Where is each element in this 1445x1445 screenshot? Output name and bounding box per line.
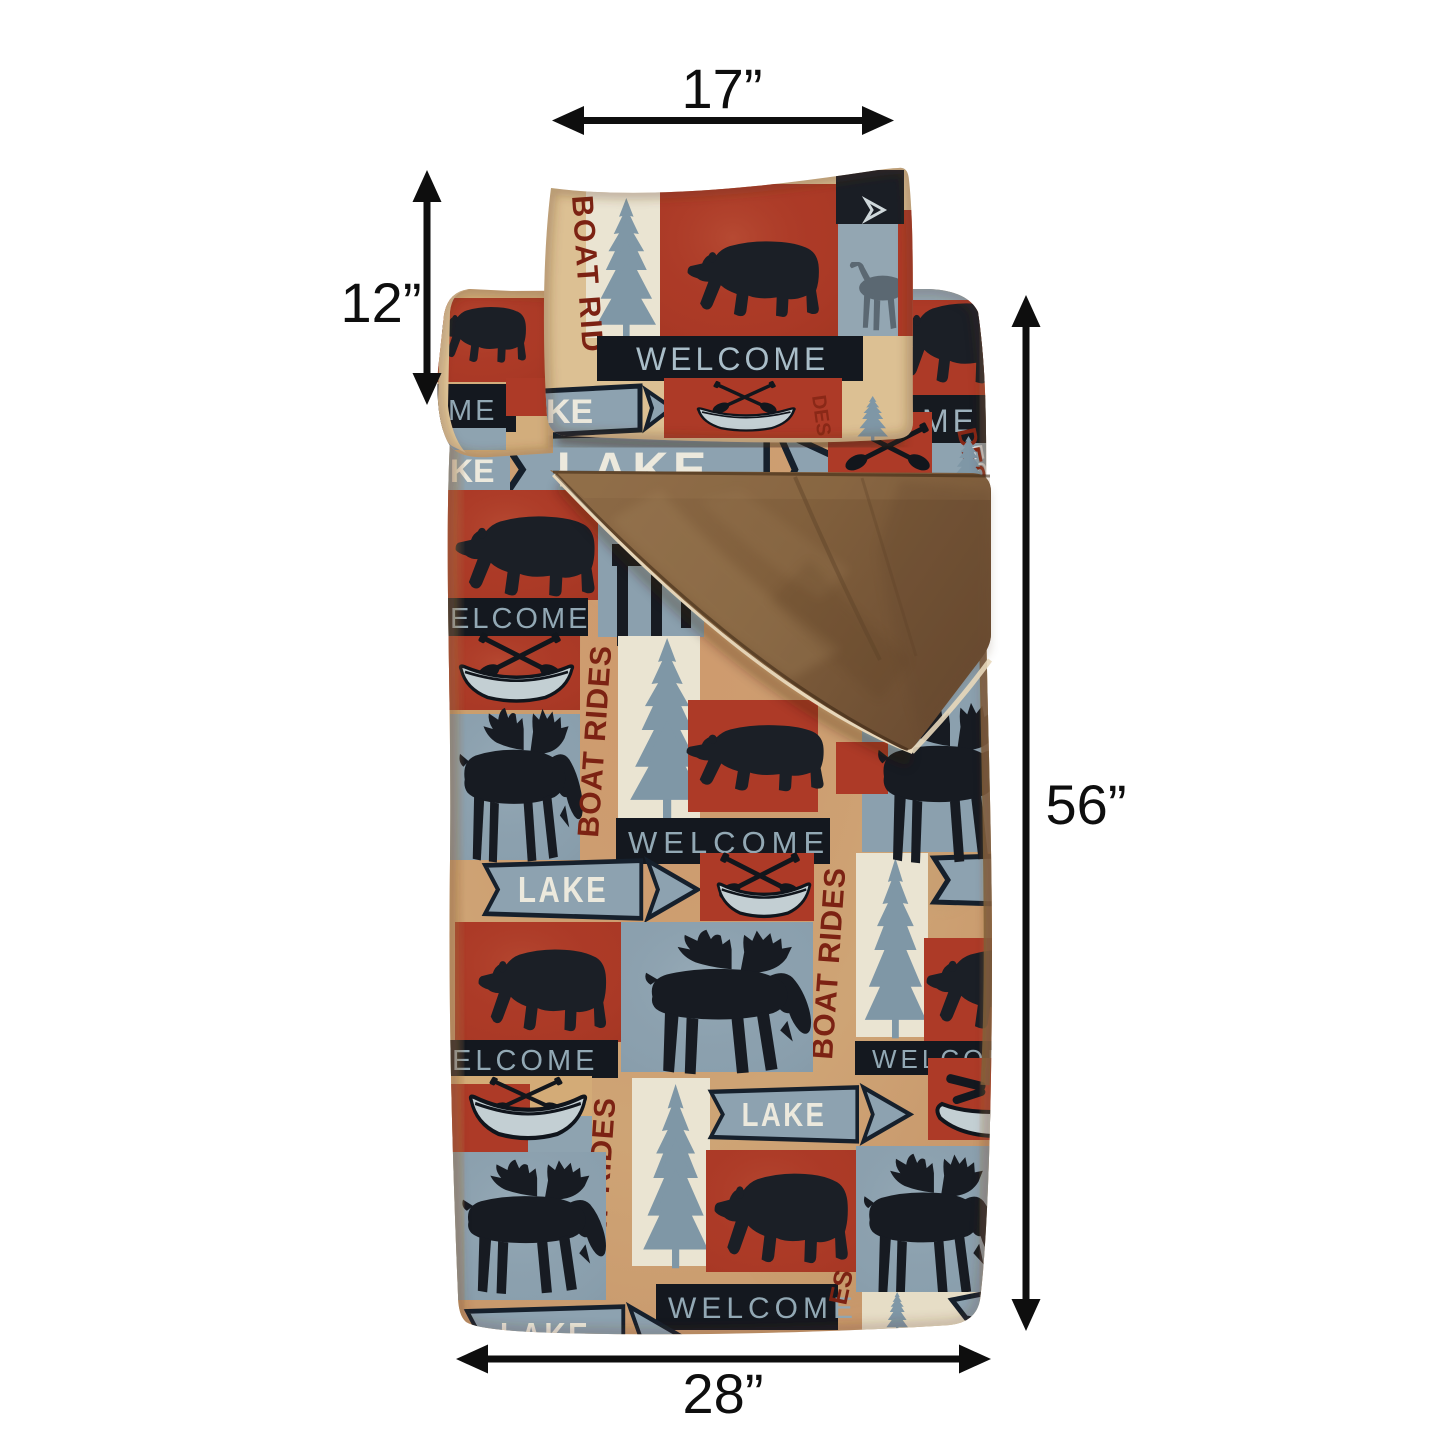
svg-text:28”: 28” [683, 1362, 764, 1425]
svg-text:ELCOME: ELCOME [450, 603, 590, 635]
svg-text:WELCOME: WELCOME [636, 341, 829, 377]
svg-text:ME: ME [448, 395, 498, 427]
svg-text:ELCOME: ELCOME [452, 1045, 598, 1077]
svg-text:17”: 17” [682, 57, 763, 120]
svg-text:12”: 12” [341, 271, 422, 334]
svg-text:56”: 56” [1046, 773, 1127, 836]
